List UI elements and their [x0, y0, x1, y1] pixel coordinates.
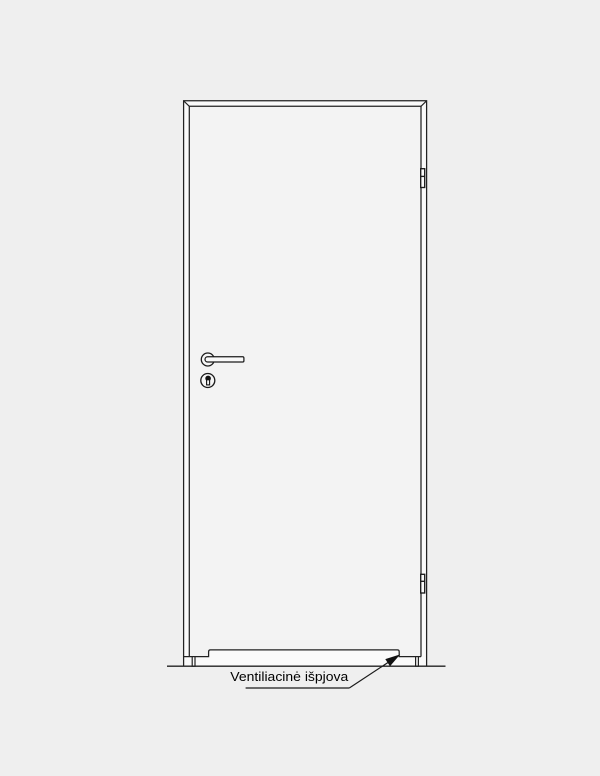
- svg-text:Ventiliacinė išpjova: Ventiliacinė išpjova: [230, 669, 349, 684]
